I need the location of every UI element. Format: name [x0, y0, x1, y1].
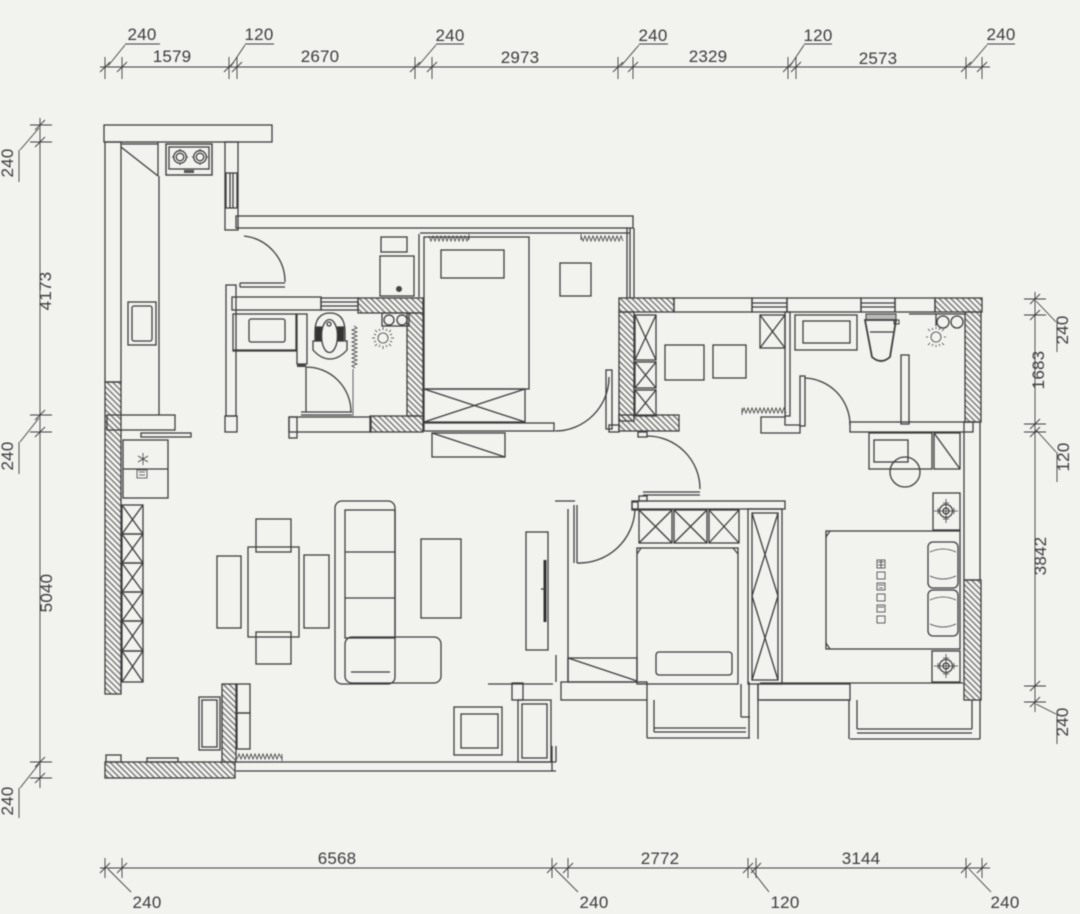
svg-text:240: 240: [1053, 708, 1072, 737]
svg-text:2772: 2772: [641, 849, 680, 868]
svg-text:120: 120: [771, 893, 800, 912]
svg-text:240: 240: [639, 26, 668, 45]
svg-text:240: 240: [1053, 316, 1072, 345]
svg-text:120: 120: [1054, 443, 1073, 472]
svg-text:3144: 3144: [842, 849, 881, 868]
svg-text:120: 120: [804, 26, 833, 45]
svg-text:4173: 4173: [36, 272, 55, 311]
svg-text:240: 240: [128, 25, 157, 44]
svg-text:240: 240: [0, 787, 17, 816]
svg-text:240: 240: [436, 26, 465, 45]
svg-text:6568: 6568: [318, 849, 357, 868]
svg-text:5040: 5040: [37, 574, 56, 613]
svg-text:120: 120: [245, 25, 274, 44]
svg-text:1683: 1683: [1029, 351, 1048, 390]
svg-text:2573: 2573: [859, 49, 898, 68]
svg-text:240: 240: [0, 149, 17, 178]
svg-text:240: 240: [987, 25, 1016, 44]
svg-text:2973: 2973: [501, 48, 540, 67]
svg-text:3842: 3842: [1031, 537, 1050, 576]
svg-text:1579: 1579: [153, 47, 192, 66]
svg-text:240: 240: [991, 893, 1020, 912]
svg-text:240: 240: [580, 893, 609, 912]
svg-text:2329: 2329: [689, 47, 728, 66]
svg-text:2670: 2670: [301, 47, 340, 66]
svg-text:240: 240: [133, 893, 162, 912]
svg-text:240: 240: [0, 442, 17, 471]
